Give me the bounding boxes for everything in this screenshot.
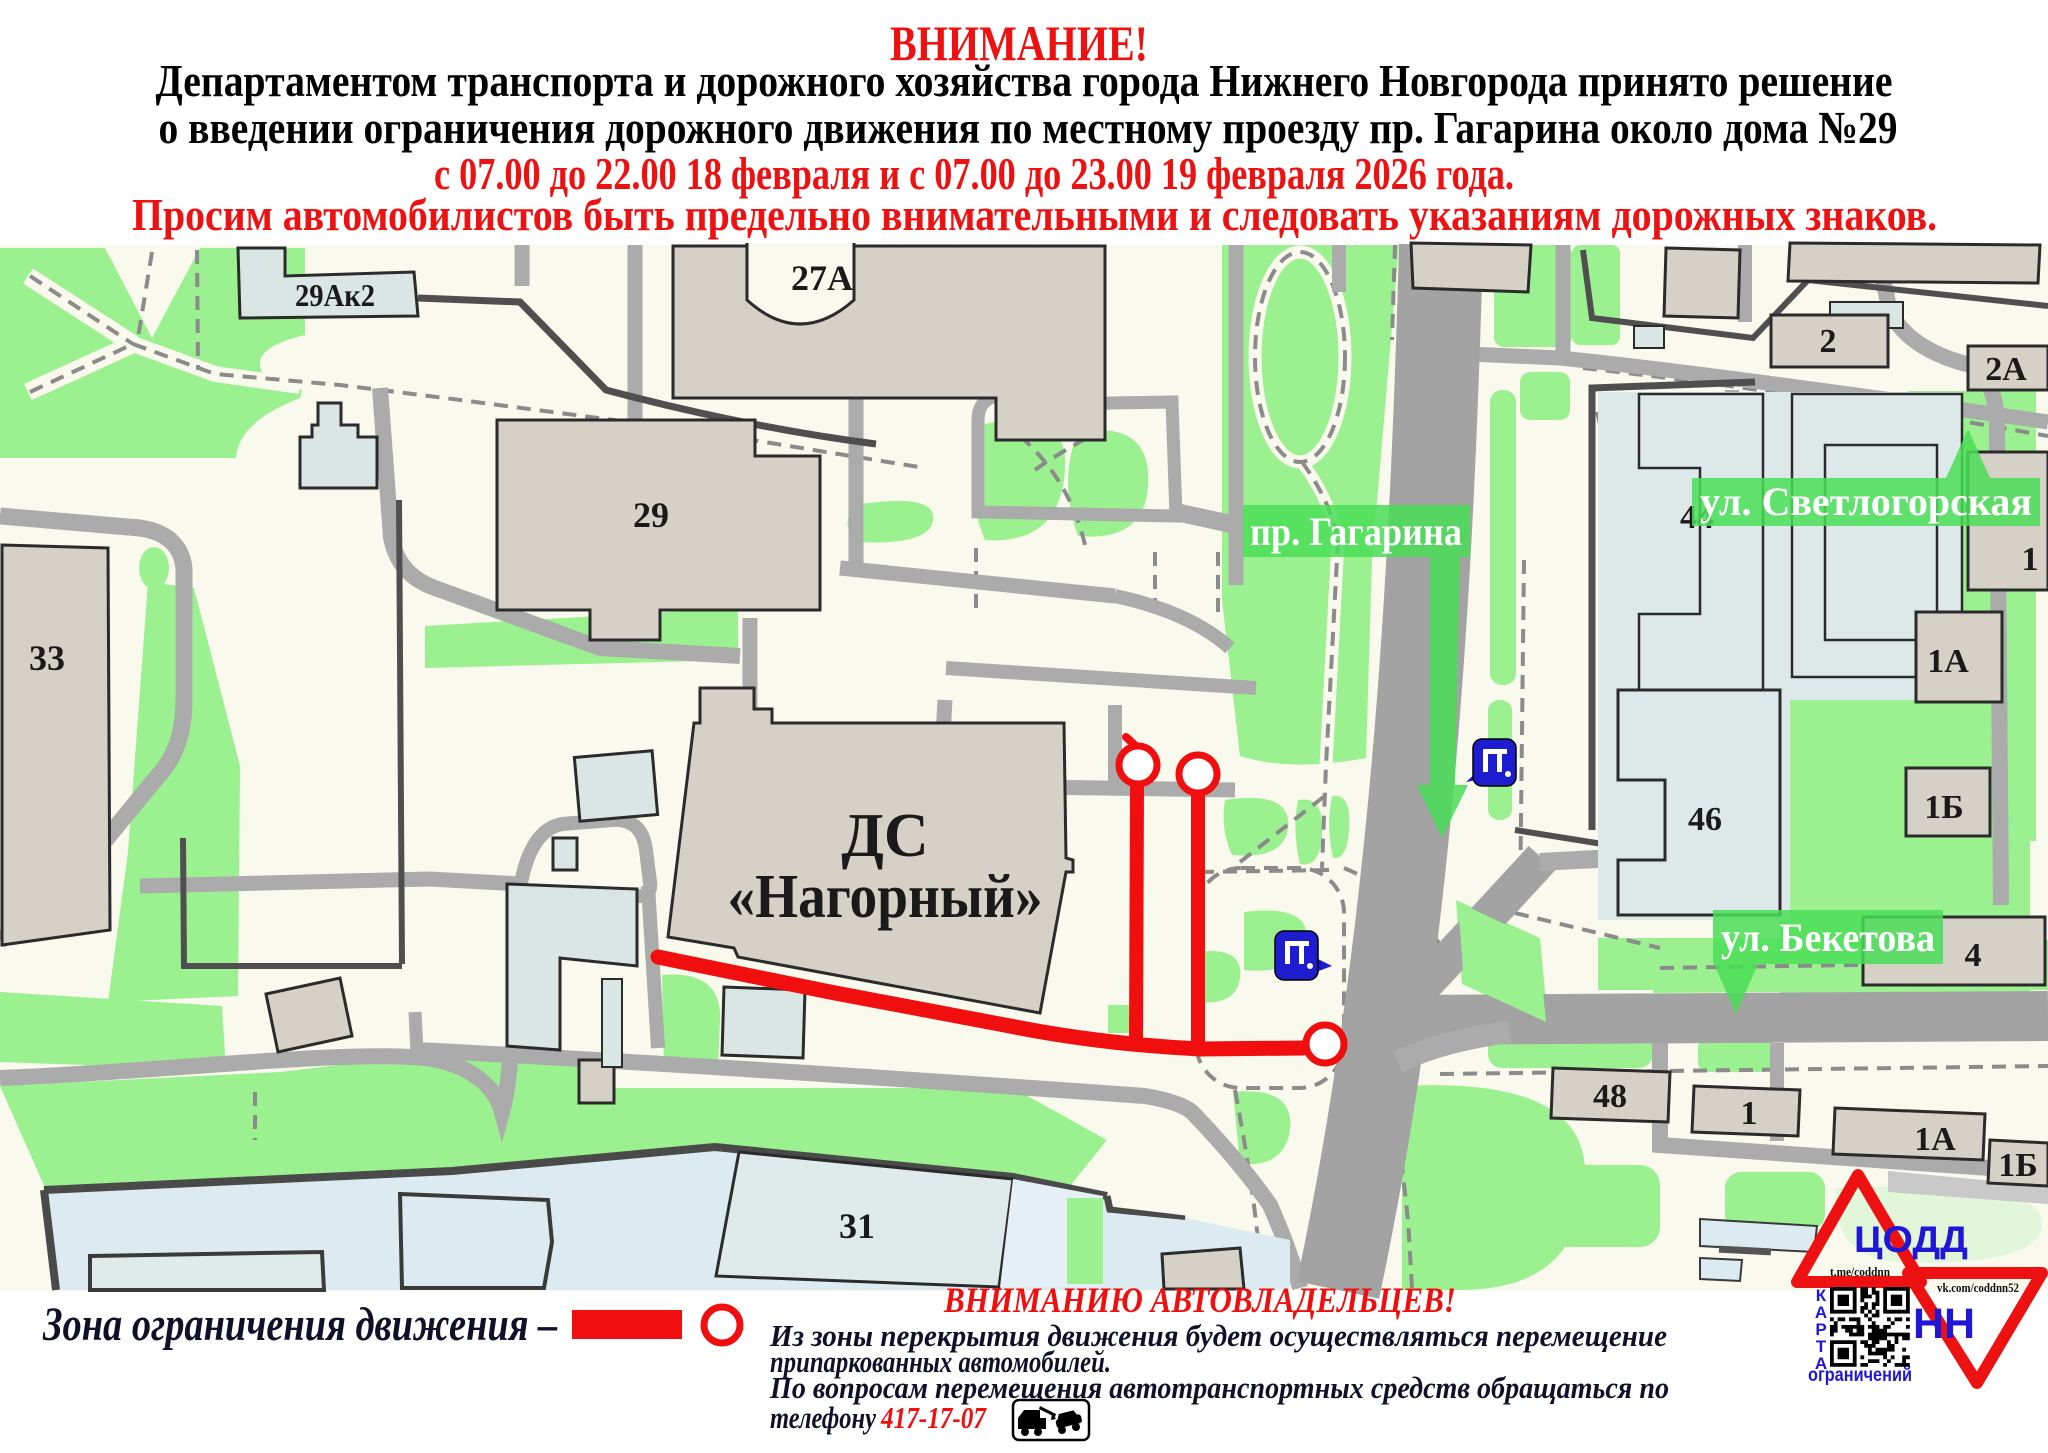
svg-text:ЦОДД: ЦОДД bbox=[1854, 1219, 1968, 1260]
svg-text:46: 46 bbox=[1688, 801, 1722, 838]
svg-text:о введении ограничения дорожно: о введении ограничения дорожного движени… bbox=[159, 102, 1898, 153]
svg-text:ограничений: ограничений bbox=[1808, 1365, 1912, 1386]
svg-text:ДС: ДС bbox=[841, 802, 928, 870]
svg-text:29Ак2: 29Ак2 bbox=[295, 277, 375, 313]
svg-text:«Нагорный»: «Нагорный» bbox=[728, 863, 1043, 931]
svg-text:t.me/coddnn: t.me/coddnn bbox=[1830, 1264, 1891, 1279]
svg-text:Зона ограничения движения –: Зона ограничения движения – bbox=[42, 1298, 557, 1351]
svg-text:1Б: 1Б bbox=[1998, 1147, 2037, 1184]
svg-text:27А: 27А bbox=[791, 258, 853, 298]
svg-text:1: 1 bbox=[1741, 1095, 1758, 1132]
svg-text:31: 31 bbox=[839, 1206, 875, 1246]
svg-text:1Б: 1Б bbox=[1924, 789, 1963, 826]
svg-text:vk.com/coddnn52: vk.com/coddnn52 bbox=[1937, 1280, 2019, 1295]
svg-text:пр. Гагарина: пр. Гагарина bbox=[1250, 509, 1462, 554]
svg-text:1: 1 bbox=[2022, 541, 2039, 578]
svg-text:33: 33 bbox=[29, 638, 65, 678]
svg-text:1А: 1А bbox=[1927, 643, 1969, 680]
svg-text:Просим автомобилистов быть пре: Просим автомобилистов быть предельно вни… bbox=[132, 190, 1937, 240]
svg-text:ВНИМАНИЮ АВТОВЛАДЕЛЬЦЕВ!: ВНИМАНИЮ АВТОВЛАДЕЛЬЦЕВ! bbox=[943, 1280, 1456, 1320]
svg-text:2А: 2А bbox=[1985, 351, 2027, 388]
svg-text:1А: 1А bbox=[1914, 1121, 1956, 1158]
svg-text:ул. Бекетова: ул. Бекетова bbox=[1721, 915, 1935, 960]
svg-text:4: 4 bbox=[1965, 937, 1982, 974]
svg-text:ул. Светлогорская: ул. Светлогорская bbox=[1700, 479, 2032, 524]
svg-text:Департаментом транспорта и дор: Департаментом транспорта и дорожного хоз… bbox=[156, 55, 1893, 106]
svg-text:телефону: телефону bbox=[770, 1400, 876, 1435]
svg-text:29: 29 bbox=[633, 495, 669, 535]
svg-text:48: 48 bbox=[1593, 1078, 1627, 1115]
svg-text:2: 2 bbox=[1820, 323, 1837, 360]
svg-text:НН: НН bbox=[1913, 1300, 1975, 1348]
svg-text:417-17-07: 417-17-07 bbox=[880, 1400, 987, 1435]
